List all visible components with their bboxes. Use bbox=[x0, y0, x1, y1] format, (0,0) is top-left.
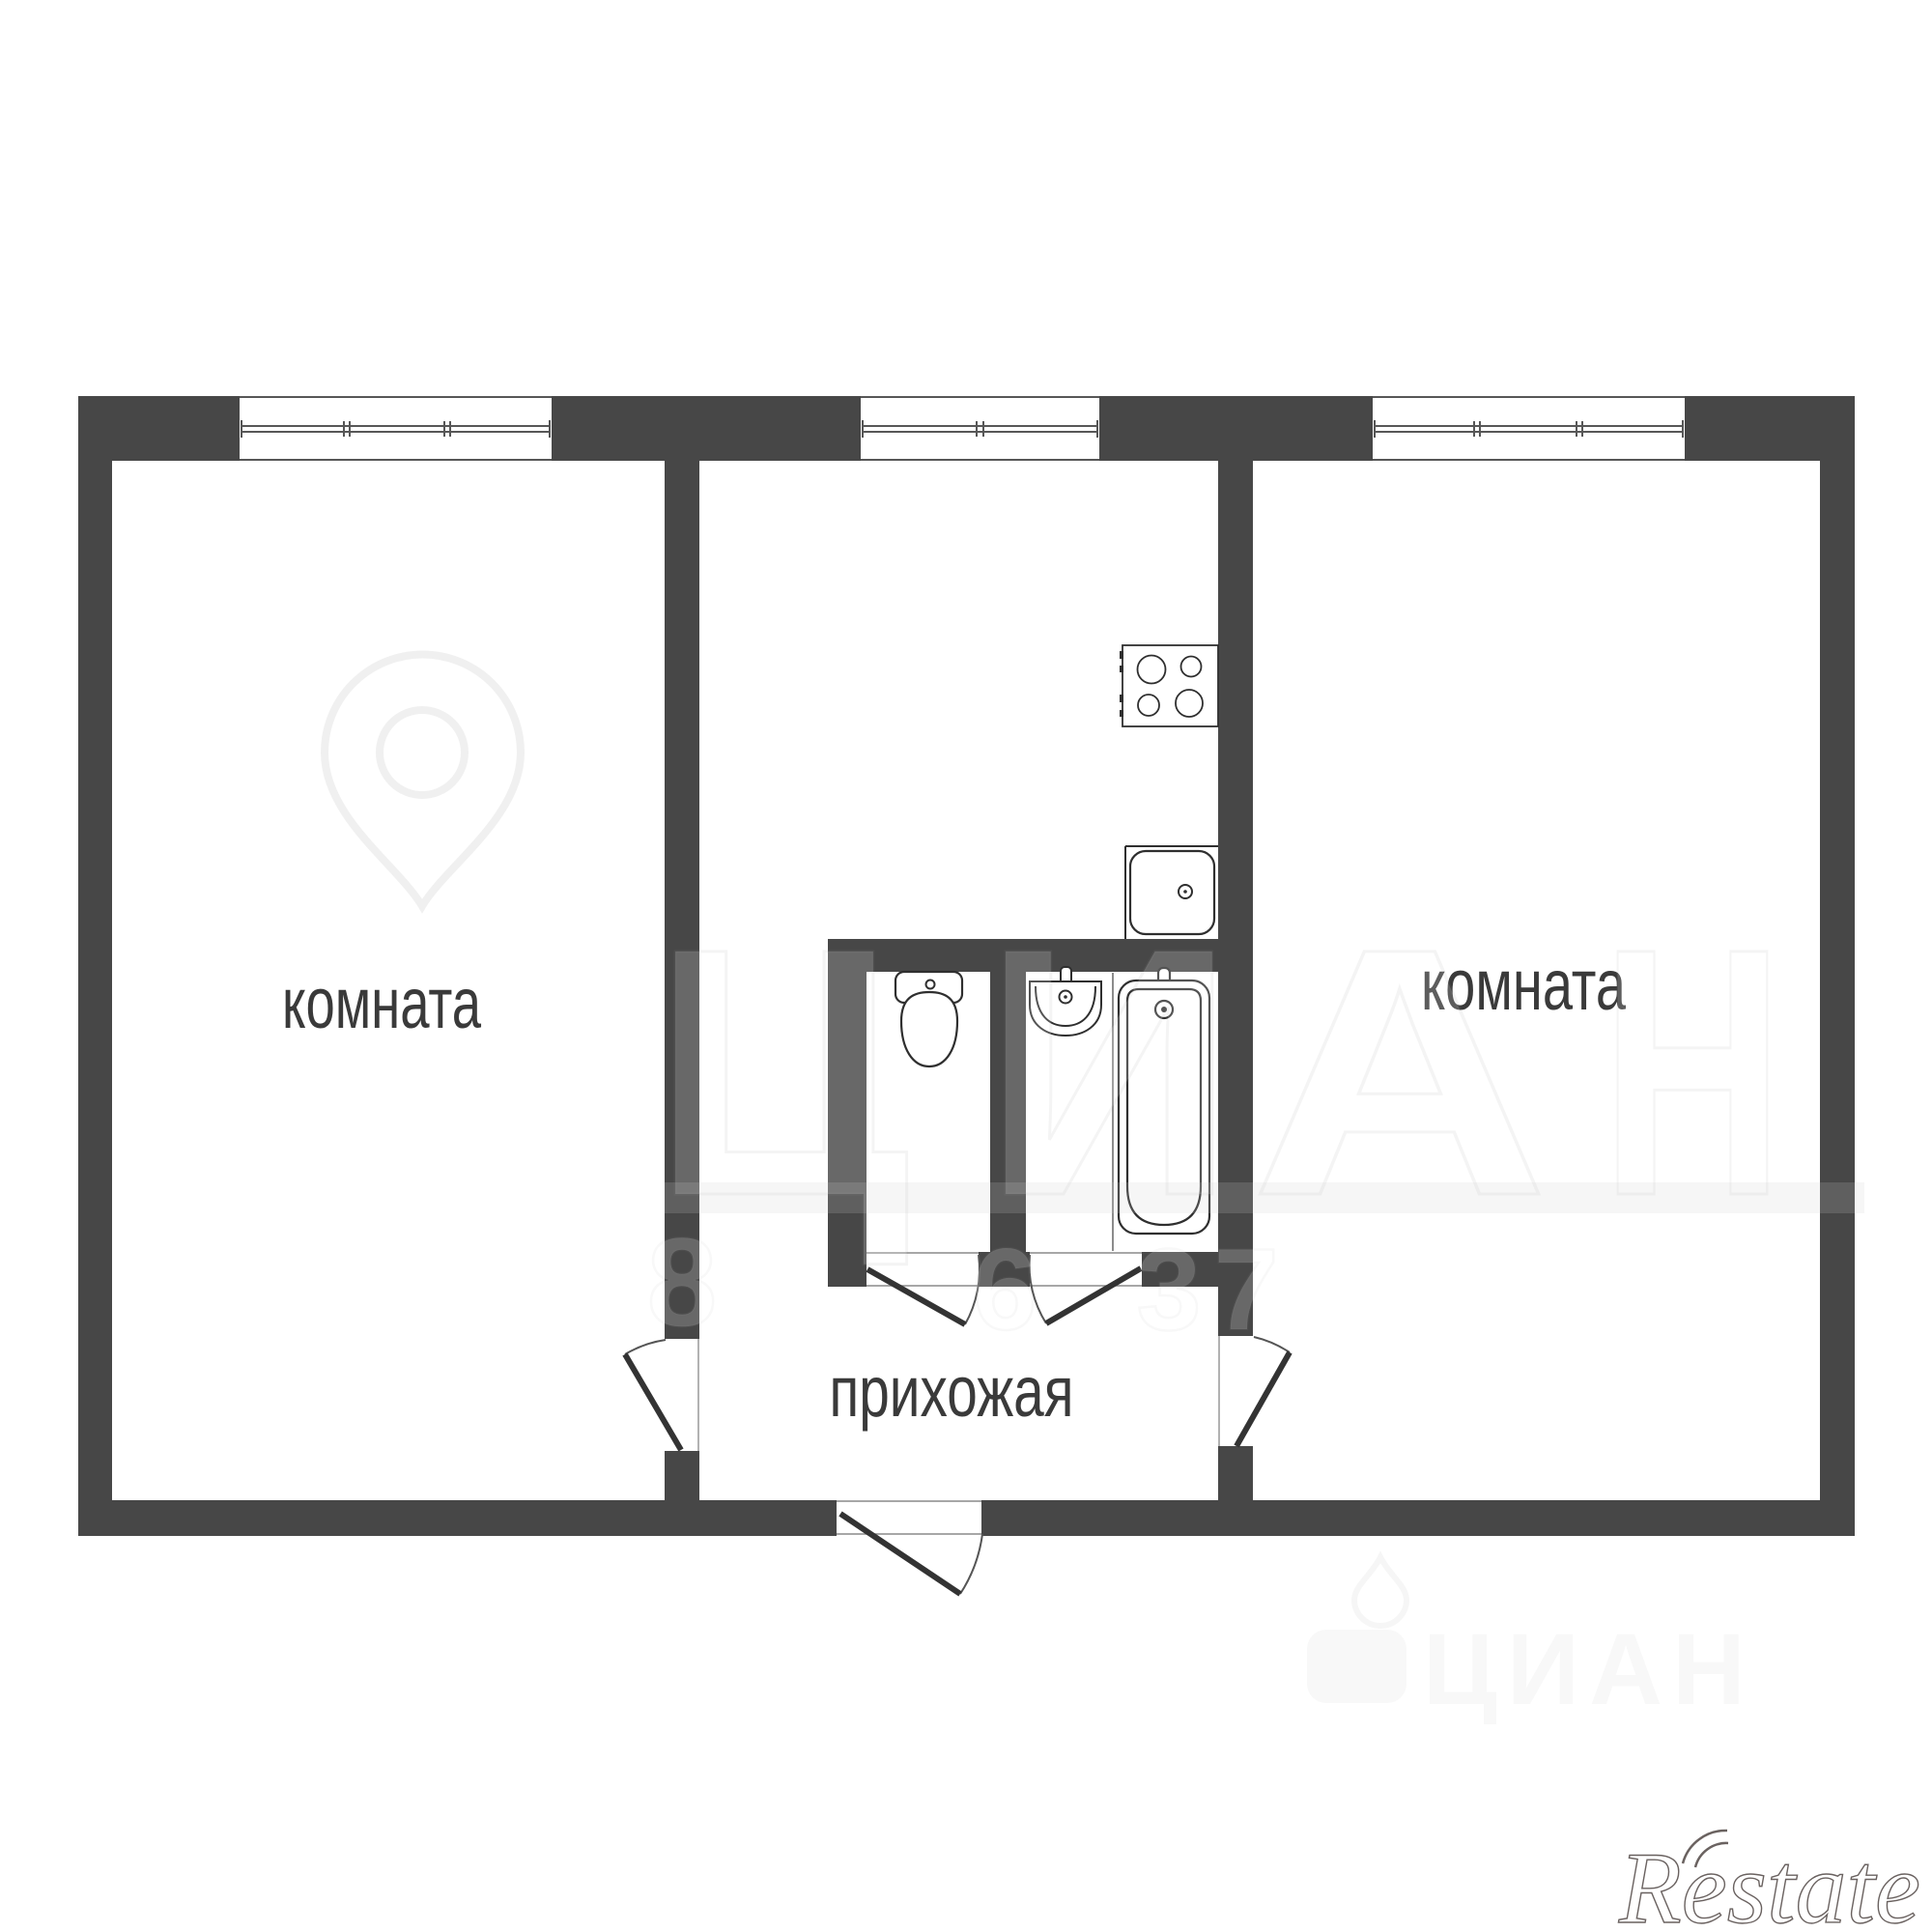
svg-text:3: 3 bbox=[1137, 1225, 1202, 1354]
svg-text:прихожая: прихожая bbox=[830, 1351, 1074, 1432]
svg-text:Restate: Restate bbox=[1618, 1832, 1920, 1932]
svg-text:комната: комната bbox=[282, 963, 482, 1043]
svg-text:7: 7 bbox=[1214, 1225, 1279, 1354]
svg-text:ЦИАН: ЦИАН bbox=[1423, 1613, 1755, 1726]
svg-text:8: 8 bbox=[647, 1211, 717, 1352]
svg-text:6: 6 bbox=[973, 1225, 1037, 1354]
